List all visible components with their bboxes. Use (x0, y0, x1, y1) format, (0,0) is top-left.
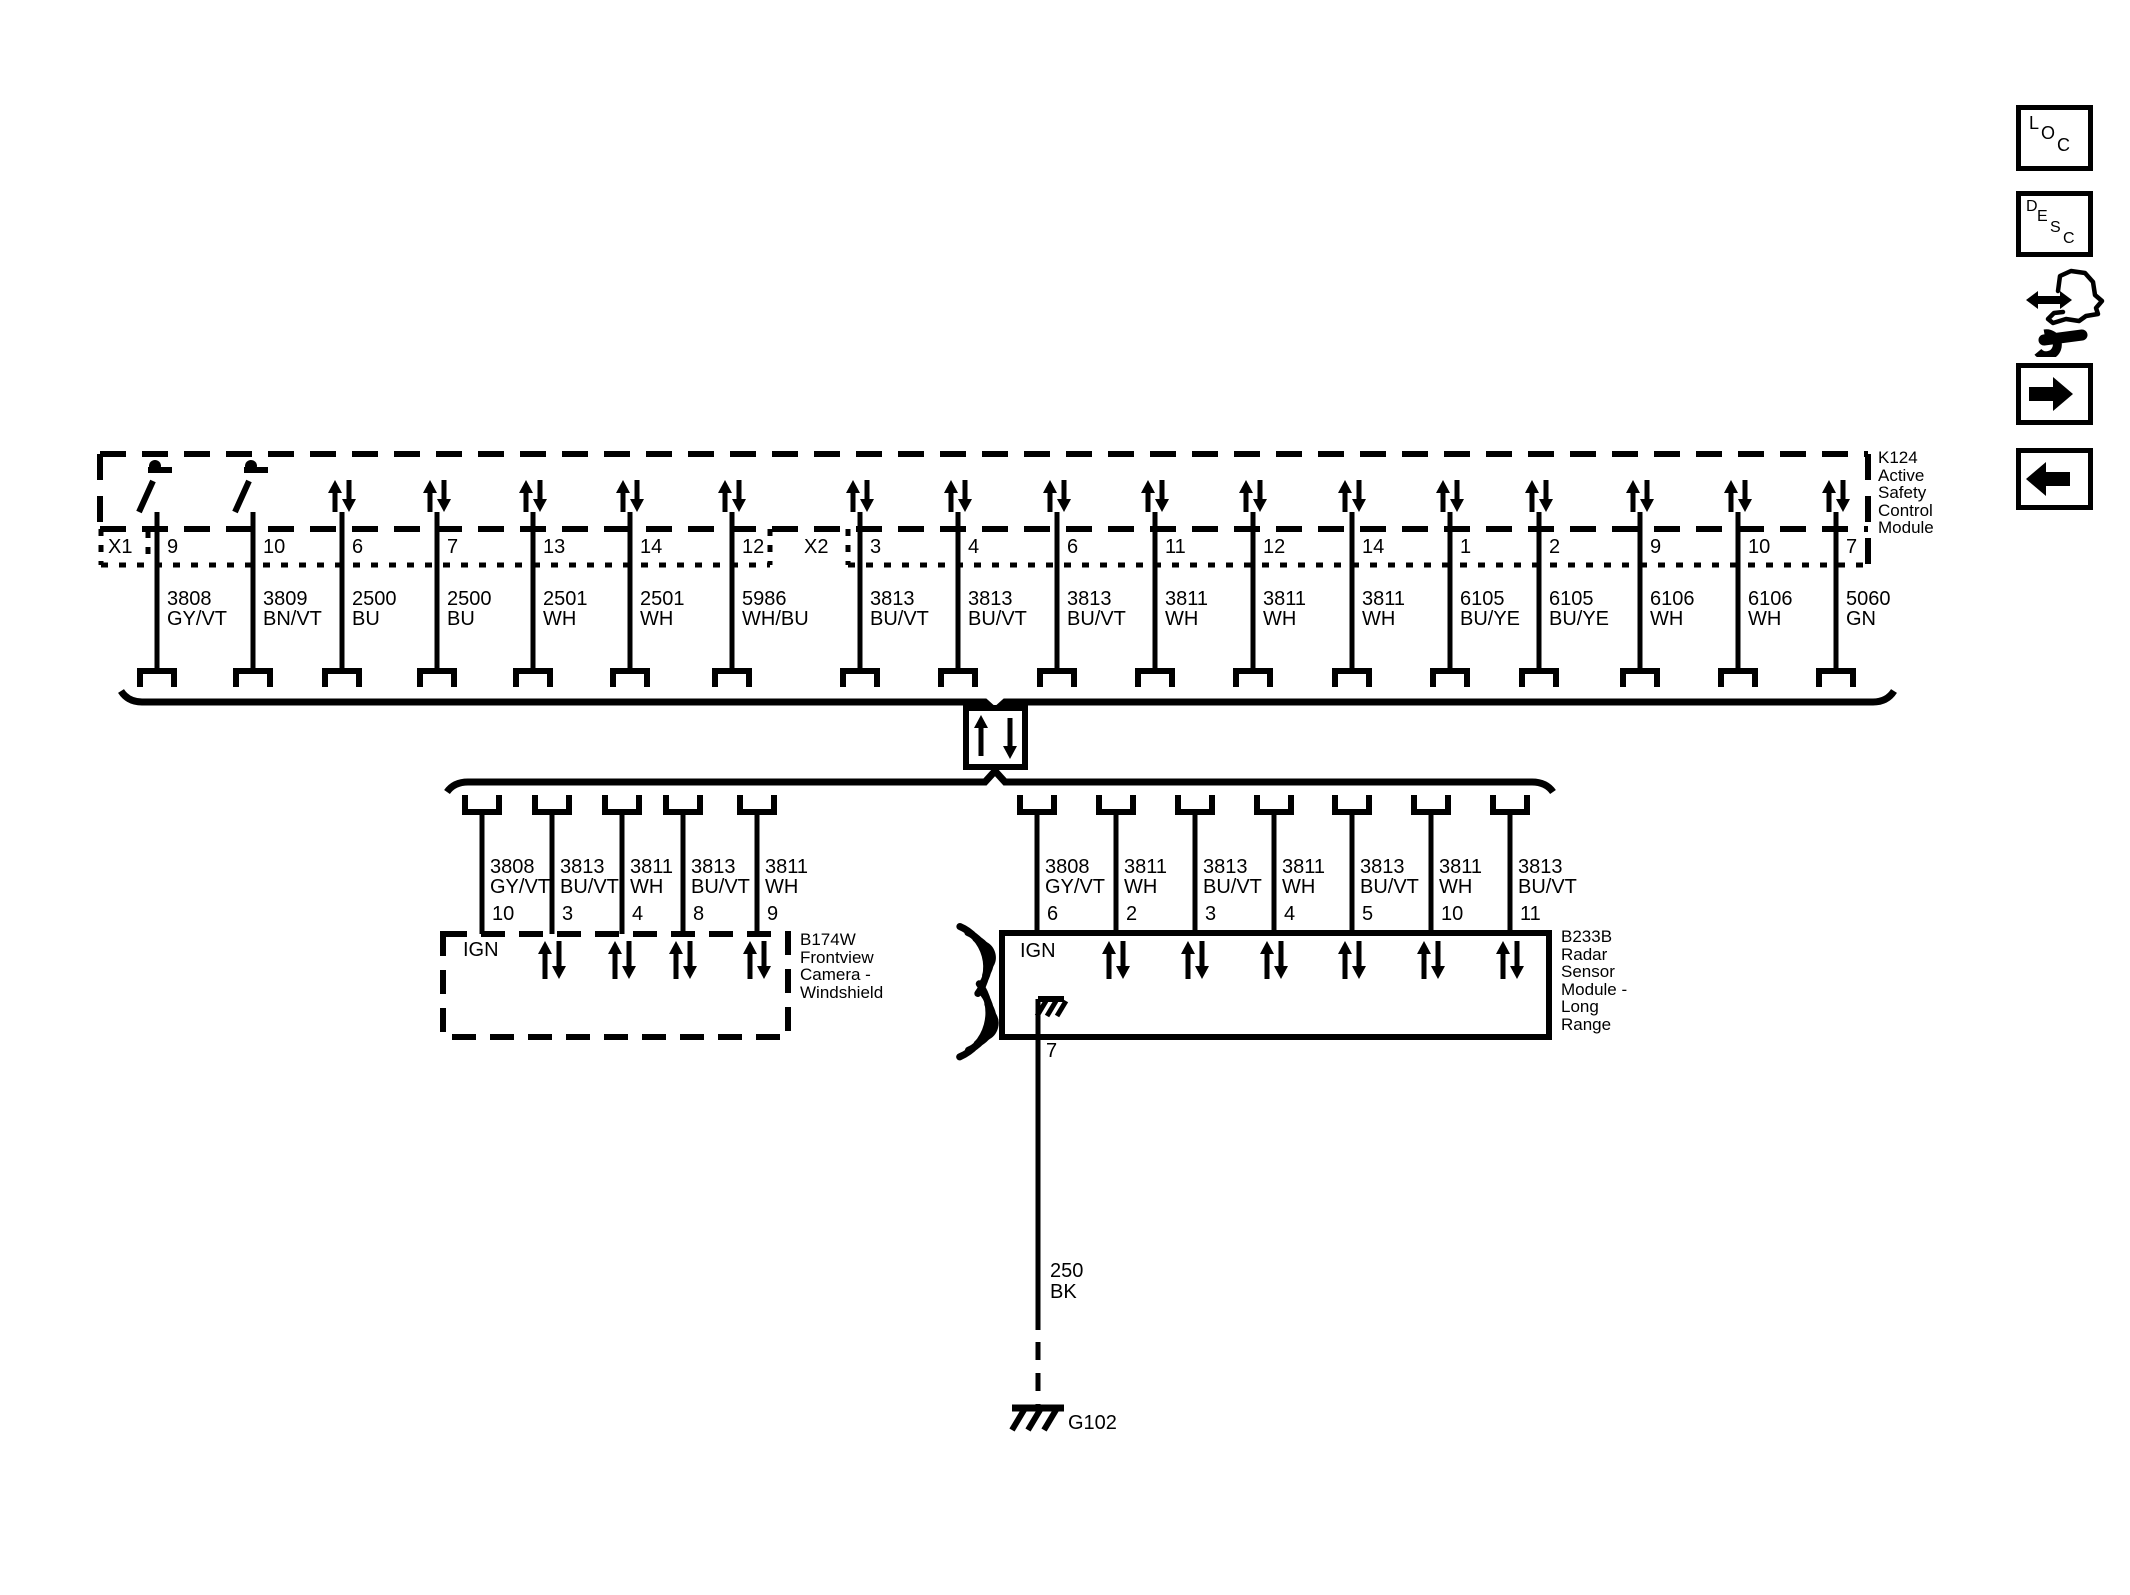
arrow-up-icon (1822, 480, 1836, 493)
arrow-up-icon (743, 941, 757, 954)
arrow-up-icon (1260, 941, 1274, 954)
arrow-right-icon (2021, 368, 2078, 420)
terminal-icon (1623, 671, 1657, 687)
g102-ground-icon (1044, 1410, 1056, 1430)
terminal-icon (1099, 795, 1133, 812)
arrow-down-icon (1738, 499, 1752, 512)
arrow-down-icon (1836, 499, 1850, 512)
terminal-icon (666, 795, 700, 812)
terminal-icon (605, 795, 639, 812)
letter-s: S (2050, 219, 2061, 237)
arrow-up-icon (1181, 941, 1195, 954)
letter-e: E (2037, 208, 2048, 226)
wrench-arrows-icon (2016, 262, 2111, 357)
inline-connector-box (966, 708, 1025, 767)
radar-box (1002, 933, 1549, 1037)
terminal-icon (1236, 671, 1270, 687)
terminal-icon (1414, 795, 1448, 812)
terminal-icon (1433, 671, 1467, 687)
arrow-down-icon (1431, 966, 1445, 979)
terminal-icon (516, 671, 550, 687)
arrow-left-icon (2021, 453, 2078, 505)
next-button[interactable] (2016, 363, 2093, 425)
terminal-icon (1138, 671, 1172, 687)
terminal-icon (1335, 671, 1369, 687)
arrow-down-icon (552, 966, 566, 979)
arrow-down-icon (1510, 966, 1524, 979)
loc-button[interactable]: LOC (2016, 105, 2093, 171)
terminal-icon (941, 671, 975, 687)
switch-output-icon (245, 460, 257, 472)
arrow-up-icon (718, 480, 732, 493)
arrow-up-icon (1496, 941, 1510, 954)
arrow-down-icon (1274, 966, 1288, 979)
arrow-down-icon (757, 966, 771, 979)
arrow-up-icon (944, 480, 958, 493)
arrow-up-icon (1417, 941, 1431, 954)
arrow-down-icon (1640, 499, 1654, 512)
arrow-down-icon (437, 499, 451, 512)
arrow-up-icon (608, 941, 622, 954)
terminal-icon (535, 795, 569, 812)
arrow-down-icon (1155, 499, 1169, 512)
arrow-down-icon (1253, 499, 1267, 512)
arrow-down-icon (533, 499, 547, 512)
arrow-down-icon (630, 499, 644, 512)
arrow-up-icon (1338, 941, 1352, 954)
switch-output-icon (149, 460, 161, 472)
letter-o: O (2041, 123, 2055, 144)
arrow-down-icon (342, 499, 356, 512)
arrow-up-icon (1626, 480, 1640, 493)
letter-c: C (2057, 135, 2070, 156)
arrow-up-icon (538, 941, 552, 954)
radar-waves-icon (960, 984, 1005, 1064)
arrow-up-icon (1724, 480, 1738, 493)
arrow-up-icon (1436, 480, 1450, 493)
terminal-icon (1257, 795, 1291, 812)
previous-button[interactable] (2016, 448, 2093, 510)
internal-ground-icon (1057, 1001, 1066, 1016)
arrow-down-icon (1057, 499, 1071, 512)
arrow-down-icon (683, 966, 697, 979)
g102-ground-icon (1012, 1410, 1024, 1430)
desc-button[interactable]: DESC (2016, 191, 2093, 257)
terminal-icon (1020, 795, 1054, 812)
arrow-up-icon (519, 480, 533, 493)
letter-d: D (2026, 198, 2038, 216)
terminal-icon (740, 795, 774, 812)
terminal-icon (715, 671, 749, 687)
arrow-up-icon (1239, 480, 1253, 493)
internal-ground-icon (1047, 1001, 1056, 1016)
harness-brace (447, 771, 1553, 792)
terminal-icon (1335, 795, 1369, 812)
repair-instructions-button[interactable] (2016, 262, 2083, 357)
arrow-down-icon (1352, 966, 1366, 979)
terminal-icon (465, 795, 499, 812)
terminal-icon (1721, 671, 1755, 687)
arrow-down-icon (1352, 499, 1366, 512)
terminal-icon (140, 671, 174, 687)
terminal-icon (843, 671, 877, 687)
arrow-down-icon (860, 499, 874, 512)
arrow-up-icon (423, 480, 437, 493)
terminal-icon (1493, 795, 1527, 812)
terminal-icon (1819, 671, 1853, 687)
switch-output-icon (139, 481, 153, 512)
arrow-up-icon (1141, 480, 1155, 493)
arrow-down-icon (958, 499, 972, 512)
arrow-up-icon (1043, 480, 1057, 493)
arrow-up-icon (1525, 480, 1539, 493)
arrow-down-icon (1539, 499, 1553, 512)
arrow-up-icon (1102, 941, 1116, 954)
arrow-up-icon (1338, 480, 1352, 493)
terminal-icon (1522, 671, 1556, 687)
terminal-icon (1040, 671, 1074, 687)
terminal-icon (613, 671, 647, 687)
terminal-icon (1178, 795, 1212, 812)
arrow-down-icon (1450, 499, 1464, 512)
diagram-canvas (0, 0, 2130, 1595)
arrow-down-icon (1195, 966, 1209, 979)
letter-c: C (2063, 230, 2075, 248)
arrow-down-icon (1116, 966, 1130, 979)
g102-ground-icon (1028, 1410, 1040, 1430)
switch-output-icon (235, 481, 249, 512)
arrow-down-icon (622, 966, 636, 979)
arrow-up-icon (328, 480, 342, 493)
arrow-up-icon (616, 480, 630, 493)
terminal-icon (420, 671, 454, 687)
terminal-icon (236, 671, 270, 687)
arrow-up-icon (669, 941, 683, 954)
wiring-diagram-page: X1X2K124ActiveSafetyControlModule93808GY… (0, 0, 2130, 1595)
terminal-icon (325, 671, 359, 687)
letter-l: L (2029, 113, 2039, 134)
arrow-up-icon (846, 480, 860, 493)
arrow-down-icon (732, 499, 746, 512)
